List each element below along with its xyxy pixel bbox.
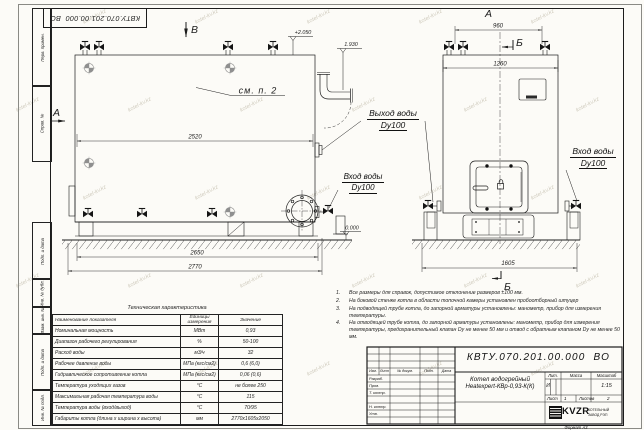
drawing-sheet: kotel-kv.kzkotel-kv.kzkotel-kv.kzkotel-k… — [0, 0, 644, 430]
table-cell-name: Рабочее давление воды — [53, 359, 181, 370]
titleblock-doc-number: КВТУ.070.201.00.000 ВО — [455, 352, 622, 363]
sign-prov: Пров. — [369, 383, 379, 388]
sign-utv: Утв. — [369, 411, 378, 416]
header-list: Лист — [379, 369, 390, 373]
header-izm: Изм. — [367, 369, 379, 373]
table-cell-units: °С — [181, 403, 219, 414]
dim-front-valves: 960 — [493, 24, 504, 30]
burner-flange — [281, 190, 323, 232]
table-cell-value: не более 250 — [219, 381, 283, 392]
sheet-label: Лист — [547, 396, 558, 401]
col-header-units: Единицы измерения — [181, 315, 219, 326]
dim-front-width: 1260 — [493, 62, 507, 68]
tech-table-header-row: Наименование показателя Единицы измерени… — [53, 315, 283, 326]
ground-hatching — [62, 240, 580, 249]
table-cell-value: 115 — [219, 392, 283, 403]
table-cell-name: Температура воды (вход/выход) — [53, 403, 181, 414]
note-item: 3.На подводящей трубе котла, до запорной… — [336, 306, 628, 320]
note-text: Все размеры для справок, допустимое откл… — [349, 290, 628, 297]
elevation-ground: 0.000 — [345, 226, 359, 232]
callout-leaders — [322, 121, 577, 208]
header-data: Дата — [438, 369, 455, 373]
table-cell-units: °С — [181, 392, 219, 403]
table-row: Диапазон рабочего регулирования%50-100 — [53, 337, 283, 348]
tech-table-body: Номинальная мощностьМВт0,93Диапазон рабо… — [53, 326, 283, 425]
sheet-value: 1 — [564, 396, 567, 401]
col-header-name: Наименование показателя — [53, 315, 181, 326]
table-cell-name: Расход воды — [53, 348, 181, 359]
callout-water-inlet-left: Вход воды Dy100 — [336, 172, 390, 194]
note-number: 3. — [336, 306, 349, 320]
table-row: Максимальная рабочая температура воды°С1… — [53, 392, 283, 403]
kvzr-logo-icon — [549, 406, 562, 419]
dim-side-overall: 2770 — [187, 265, 202, 271]
kvzr-logo-text: KVZR — [562, 406, 589, 417]
table-cell-value: 2770х1605х2050 — [219, 414, 283, 425]
view-label-b-top: Б — [516, 37, 523, 49]
furnace-door — [470, 161, 528, 213]
col-header-value: Значение — [219, 315, 283, 326]
scale-value: 1:15 — [591, 383, 622, 389]
table-cell-name: Температура уходящих газов — [53, 381, 181, 392]
tech-table: Наименование показателя Единицы измерени… — [52, 314, 283, 425]
table-cell-value: 70/95 — [219, 403, 283, 414]
see-note-callout: см. п. 2 — [239, 86, 278, 96]
door-lock-icon — [498, 180, 504, 189]
sheets-label: Листов — [579, 396, 594, 401]
scale-label: Масштаб — [591, 373, 622, 378]
product-name-line2: Heatexpert-КВр-0,93-К(К) — [453, 384, 547, 390]
callout-water-outlet: Выход воды Dy100 — [360, 108, 426, 131]
table-row: Температура воды (вход/выход)°С70/95 — [53, 403, 283, 414]
table-cell-value: 50-100 — [219, 337, 283, 348]
table-row: Рабочее давление водыМПа (кгс/см2)0,6 (6… — [53, 359, 283, 370]
table-cell-name: Номинальная мощность — [53, 326, 181, 337]
table-row: Гидравлическое сопротивление котлаМПа (к… — [53, 370, 283, 381]
note-text: На боковой стенке котла в области топочн… — [349, 298, 628, 305]
table-row: Температура уходящих газов°Сне более 250 — [53, 381, 283, 392]
company-line2: ЗАВОД РЭП — [588, 413, 607, 417]
table-cell-units: МВт — [181, 326, 219, 337]
header-docnum: № докум. — [390, 369, 420, 373]
table-cell-units: МПа (кгс/см2) — [181, 359, 219, 370]
notes-list: 1.Все размеры для справок, допустимое от… — [336, 290, 628, 342]
lift-marks — [83, 62, 237, 219]
table-cell-name: Гидравлическое сопротивление котла — [53, 370, 181, 381]
dim-front-base: 1605 — [501, 261, 515, 267]
note-item: 4.На отводящей трубе котла, до запорной … — [336, 320, 628, 341]
note-number: 1. — [336, 290, 349, 297]
note-number: 4. — [336, 320, 349, 341]
table-cell-value: 0,93 — [219, 326, 283, 337]
table-cell-value: 32 — [219, 348, 283, 359]
table-cell-units: мм — [181, 414, 219, 425]
note-number: 2. — [336, 298, 349, 305]
note-item: 2.На боковой стенке котла в области топо… — [336, 298, 628, 305]
dim-side-base: 2650 — [189, 251, 204, 257]
table-cell-name: Максимальная рабочая температура воды — [53, 392, 181, 403]
format-note: Формат А3 — [536, 425, 616, 430]
table-cell-name: Габариты котла (длина х ширина х высота) — [53, 414, 181, 425]
note-text: На отводящей трубе котла, до запорной ар… — [349, 320, 628, 341]
table-row: Номинальная мощностьМВт0,93 — [53, 326, 283, 337]
elevation-top: +2.050 — [295, 30, 312, 36]
table-cell-value: 0,6 (6,0) — [219, 359, 283, 370]
company-line1: КОТЕЛЬНЫЙ — [588, 408, 609, 412]
sign-nkontr: Н. контр. — [369, 404, 387, 409]
product-name-line1: Котел водогрейный — [455, 376, 545, 383]
table-cell-units: МПа (кгс/см2) — [181, 370, 219, 381]
table-cell-units: % — [181, 337, 219, 348]
door-handle — [473, 186, 488, 190]
sign-tkontr: Т. контр. — [369, 390, 386, 395]
note-item: 1.Все размеры для справок, допустимое от… — [336, 290, 628, 297]
table-cell-units: °С — [181, 381, 219, 392]
tech-table-title: Техническая характеристика — [52, 305, 282, 311]
lit-value: И — [545, 383, 551, 389]
header-podp: Подп. — [420, 369, 438, 373]
view-label-a-front: А — [484, 8, 492, 20]
view-label-v: В — [191, 24, 198, 36]
table-row: Расход водым3/ч32 — [53, 348, 283, 359]
table-cell-name: Диапазон рабочего регулирования — [53, 337, 181, 348]
callout-water-inlet-right: Вход воды Dy100 — [563, 146, 623, 169]
sign-razrab: Разраб. — [369, 376, 383, 381]
dim-side-inner: 2520 — [187, 135, 202, 141]
mass-label: Масса — [561, 373, 591, 378]
table-cell-units: м3/ч — [181, 348, 219, 359]
note-text: На подводящей трубе котла, до запорной а… — [349, 306, 628, 320]
table-cell-value: 0,06 (0,6) — [219, 370, 283, 381]
table-row: Габариты котла (длина х ширина х высота)… — [53, 414, 283, 425]
lit-label: Лит. — [545, 373, 561, 378]
elevation-outlet: 1.930 — [344, 42, 358, 48]
sheets-value: 2 — [607, 396, 610, 401]
view-label-a-side: А — [52, 107, 60, 119]
